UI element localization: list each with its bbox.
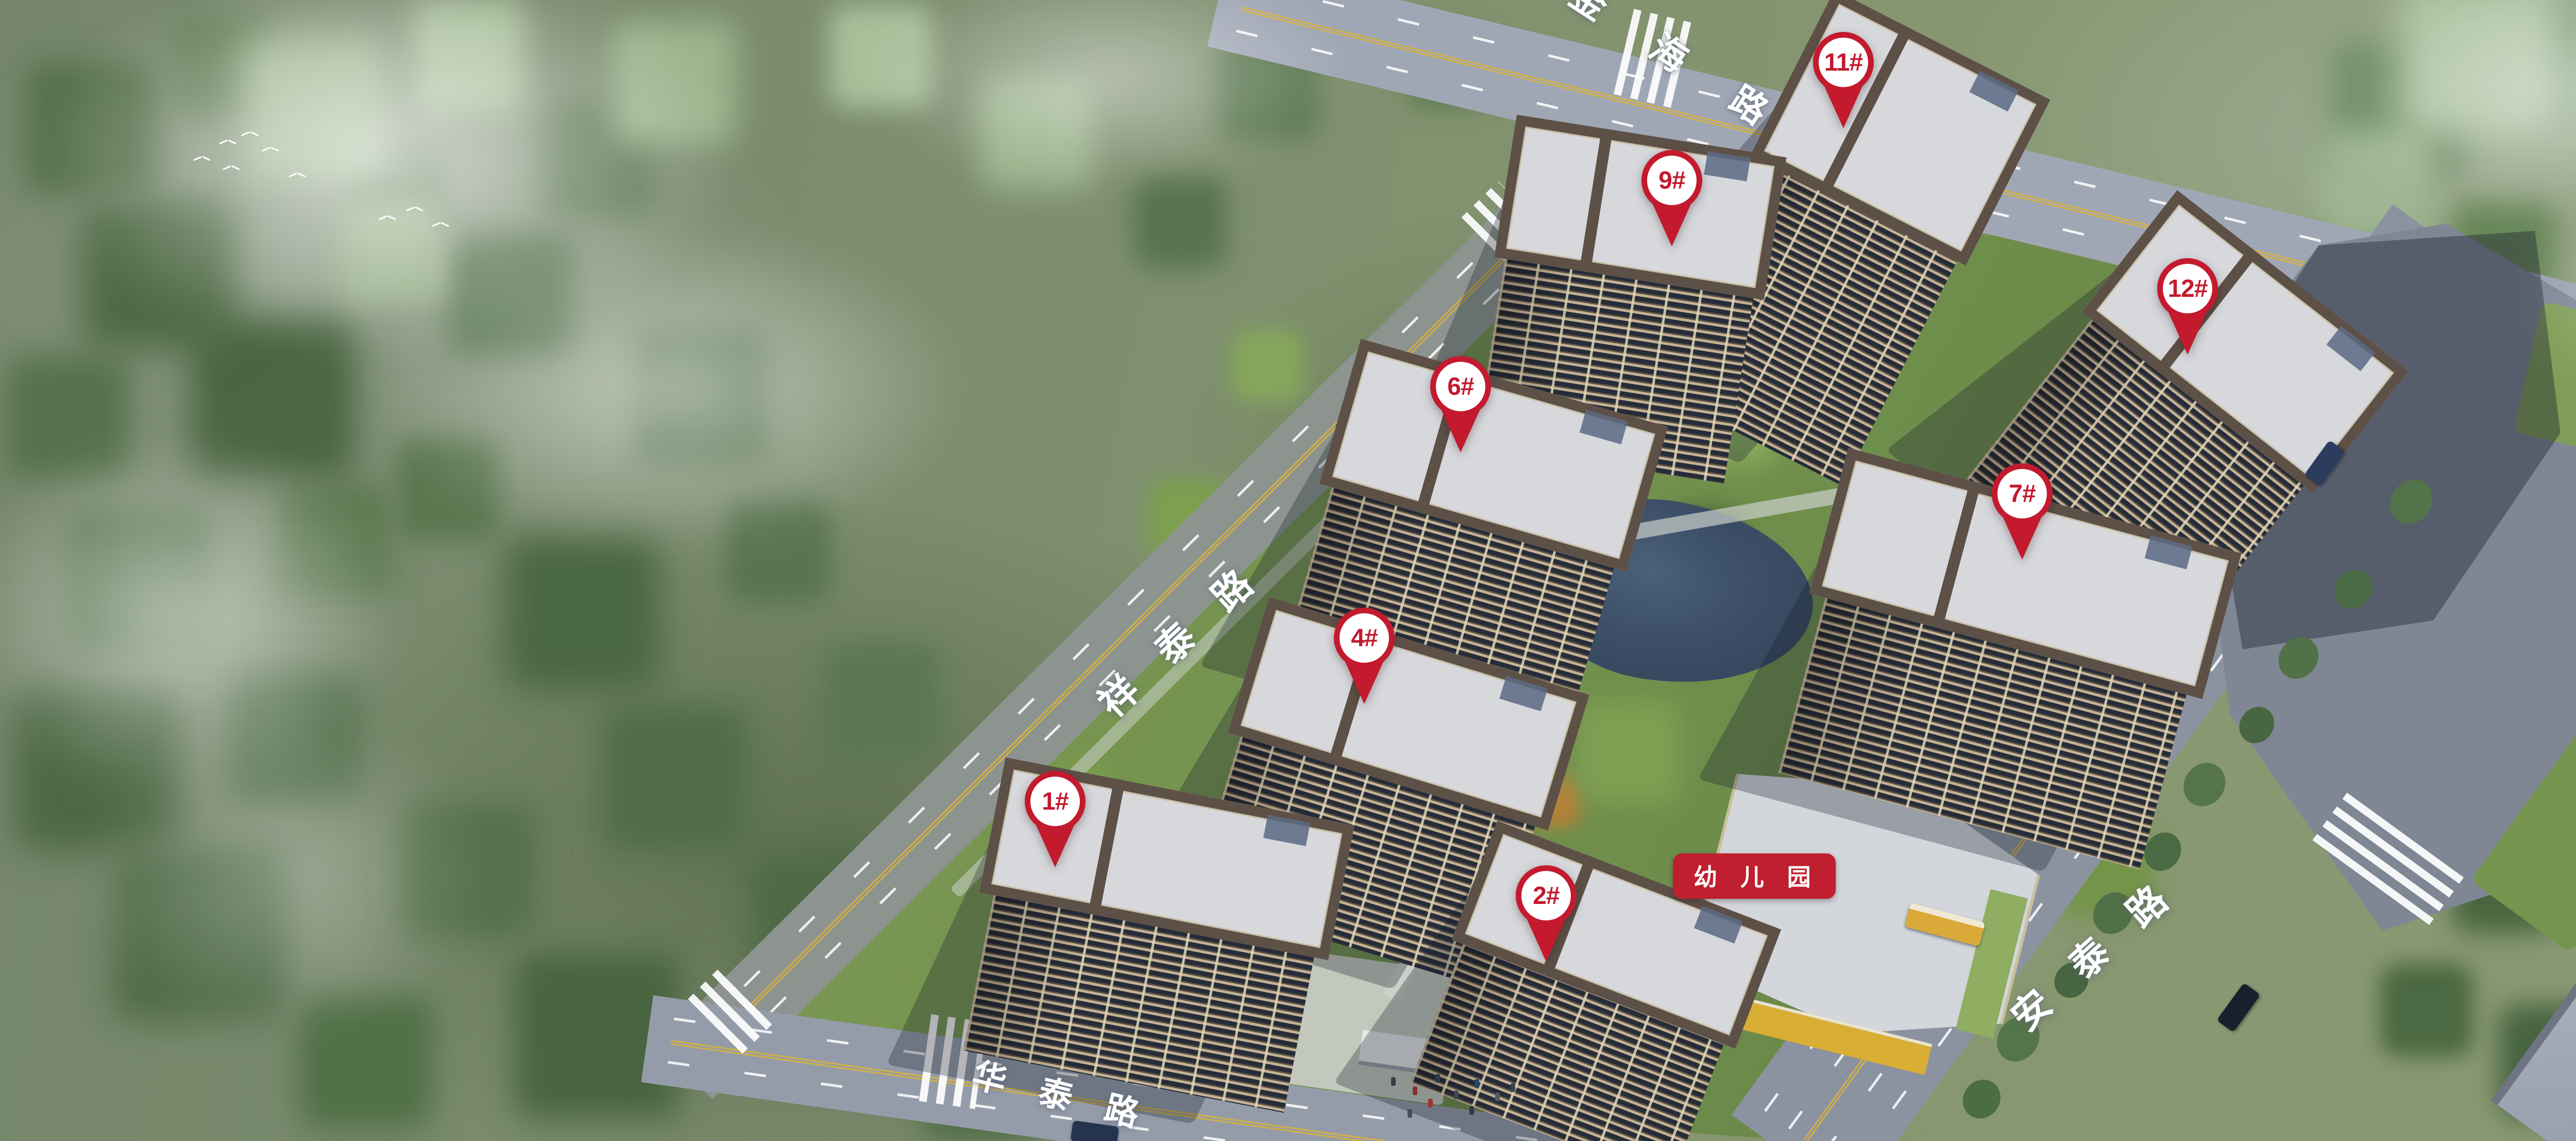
pin-circle-icon: 4# (1334, 608, 1395, 668)
people-crowd (1391, 1077, 1396, 1086)
pin-label: 12# (2167, 275, 2207, 303)
bird-icon (406, 205, 423, 212)
pin-circle-icon: 9# (1641, 150, 1702, 211)
pin-circle-icon: 7# (1992, 463, 2053, 524)
bird-icon (289, 171, 306, 178)
aerial-rendering: 鸟瞰图 金 海 路祥 泰 路安 泰 路华 泰 路 幼 儿 园 1#2#4#6#7… (0, 0, 2576, 1141)
garden-canopy (0, 0, 10, 10)
bird-icon (379, 214, 396, 221)
bird-icon (432, 221, 449, 228)
pin-label: 6# (1447, 373, 1473, 401)
bird-icon (241, 130, 259, 137)
pin-label: 9# (1658, 166, 1685, 195)
bird-icon (193, 155, 211, 162)
pin-circle-icon: 12# (2157, 258, 2218, 319)
pin-label: 7# (2009, 480, 2035, 508)
bird-icon (223, 164, 240, 171)
pin-circle-icon: 2# (1516, 865, 1577, 926)
bird-icon (219, 138, 236, 145)
pin-circle-icon: 6# (1430, 356, 1491, 417)
pin-label: 11# (1824, 48, 1862, 77)
pin-label: 1# (1042, 787, 1068, 816)
pin-circle-icon: 11# (1813, 32, 1874, 93)
poi-badge-幼儿园: 幼 儿 园 (1673, 853, 1836, 899)
pin-label: 4# (1351, 624, 1377, 652)
bird-icon (262, 145, 279, 153)
pin-label: 2# (1533, 882, 1559, 910)
pin-circle-icon: 1# (1025, 771, 1086, 832)
